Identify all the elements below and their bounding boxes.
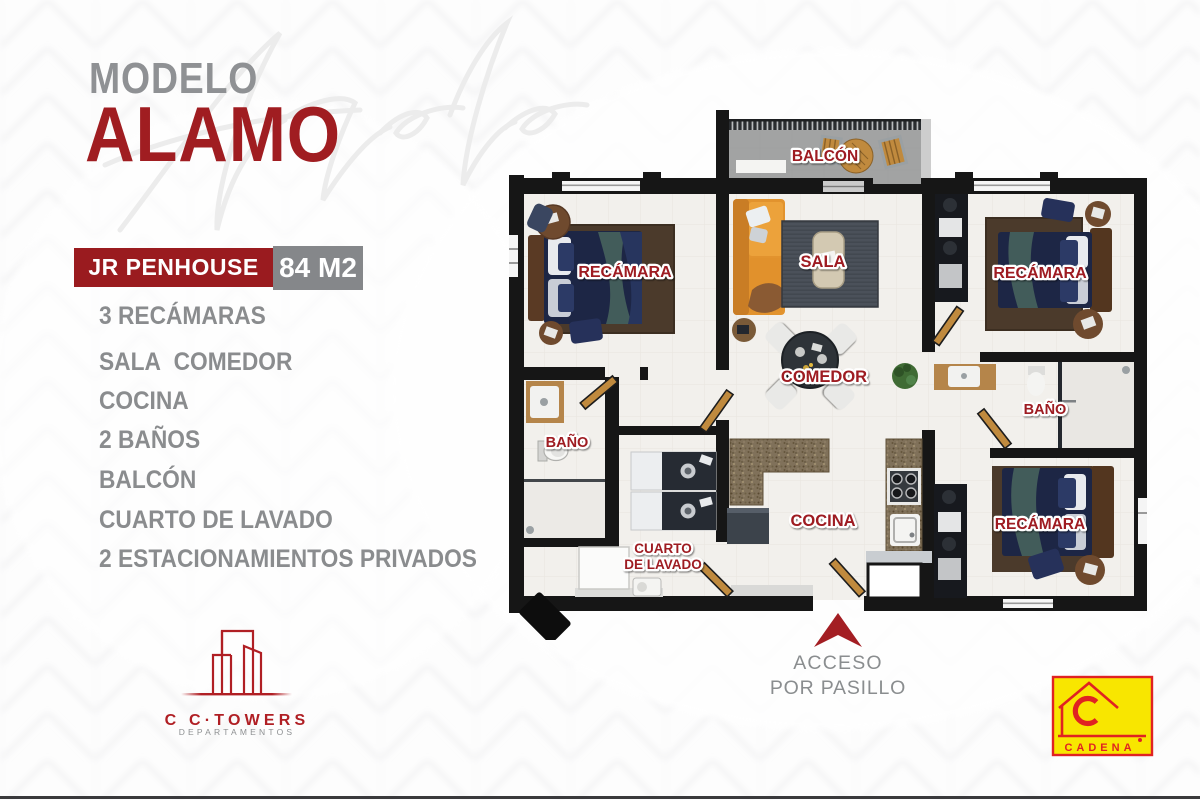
- svg-text:COCINA: COCINA: [790, 512, 855, 530]
- svg-text:CADENA: CADENA: [1064, 742, 1135, 754]
- svg-text:COMEDOR: COMEDOR: [781, 368, 867, 386]
- svg-text:BAÑO: BAÑO: [1024, 400, 1067, 418]
- svg-text:BALCÓN: BALCÓN: [792, 147, 858, 165]
- svg-text:BAÑO: BAÑO: [546, 433, 589, 451]
- svg-text:DE LAVADO: DE LAVADO: [624, 557, 702, 572]
- svg-text:DEPARTAMENTOS: DEPARTAMENTOS: [179, 727, 296, 737]
- svg-text:CUARTO: CUARTO: [634, 541, 692, 556]
- svg-text:POR PASILLO: POR PASILLO: [770, 677, 906, 699]
- svg-text:RECÁMARA: RECÁMARA: [995, 516, 1085, 533]
- svg-text:ACCESO: ACCESO: [793, 652, 883, 674]
- svg-text:RECÁMARA: RECÁMARA: [993, 263, 1087, 282]
- svg-text:SALA: SALA: [801, 253, 846, 271]
- svg-text:RECÁMARA: RECÁMARA: [578, 262, 672, 281]
